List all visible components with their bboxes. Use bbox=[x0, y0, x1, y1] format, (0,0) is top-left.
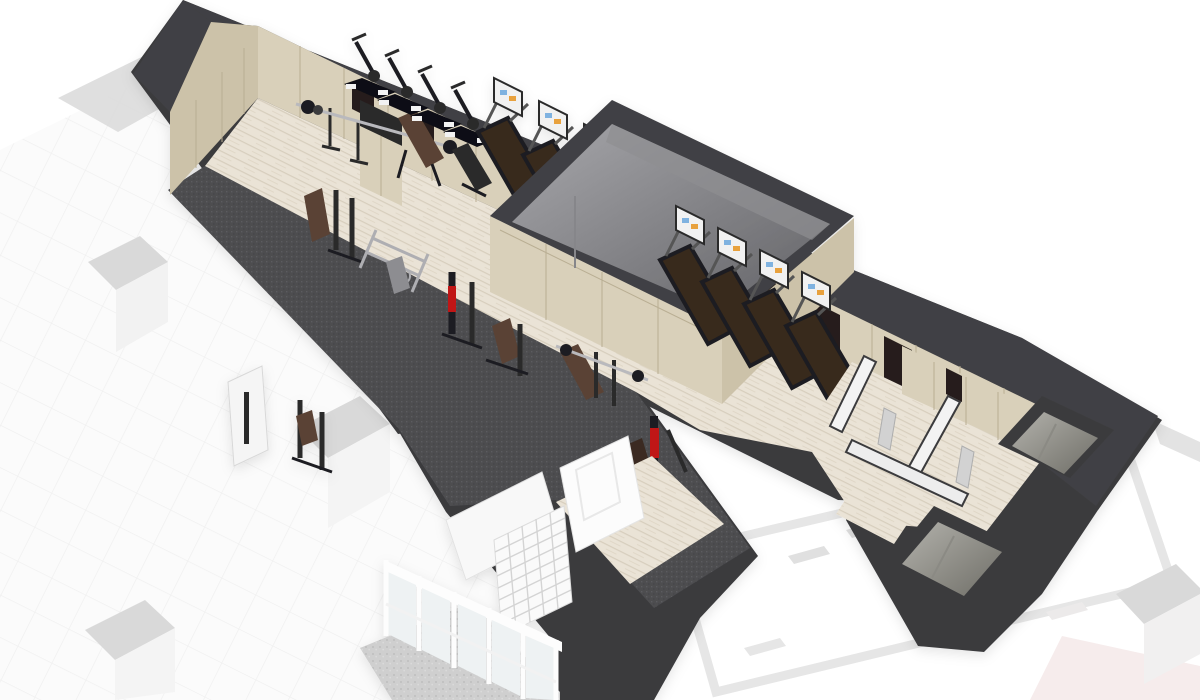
render-canvas bbox=[0, 0, 1200, 700]
water-cooler-unit bbox=[228, 366, 268, 466]
barbell-plate bbox=[301, 100, 315, 114]
barbell-plate bbox=[313, 105, 323, 115]
floorplan-render bbox=[0, 0, 1200, 700]
